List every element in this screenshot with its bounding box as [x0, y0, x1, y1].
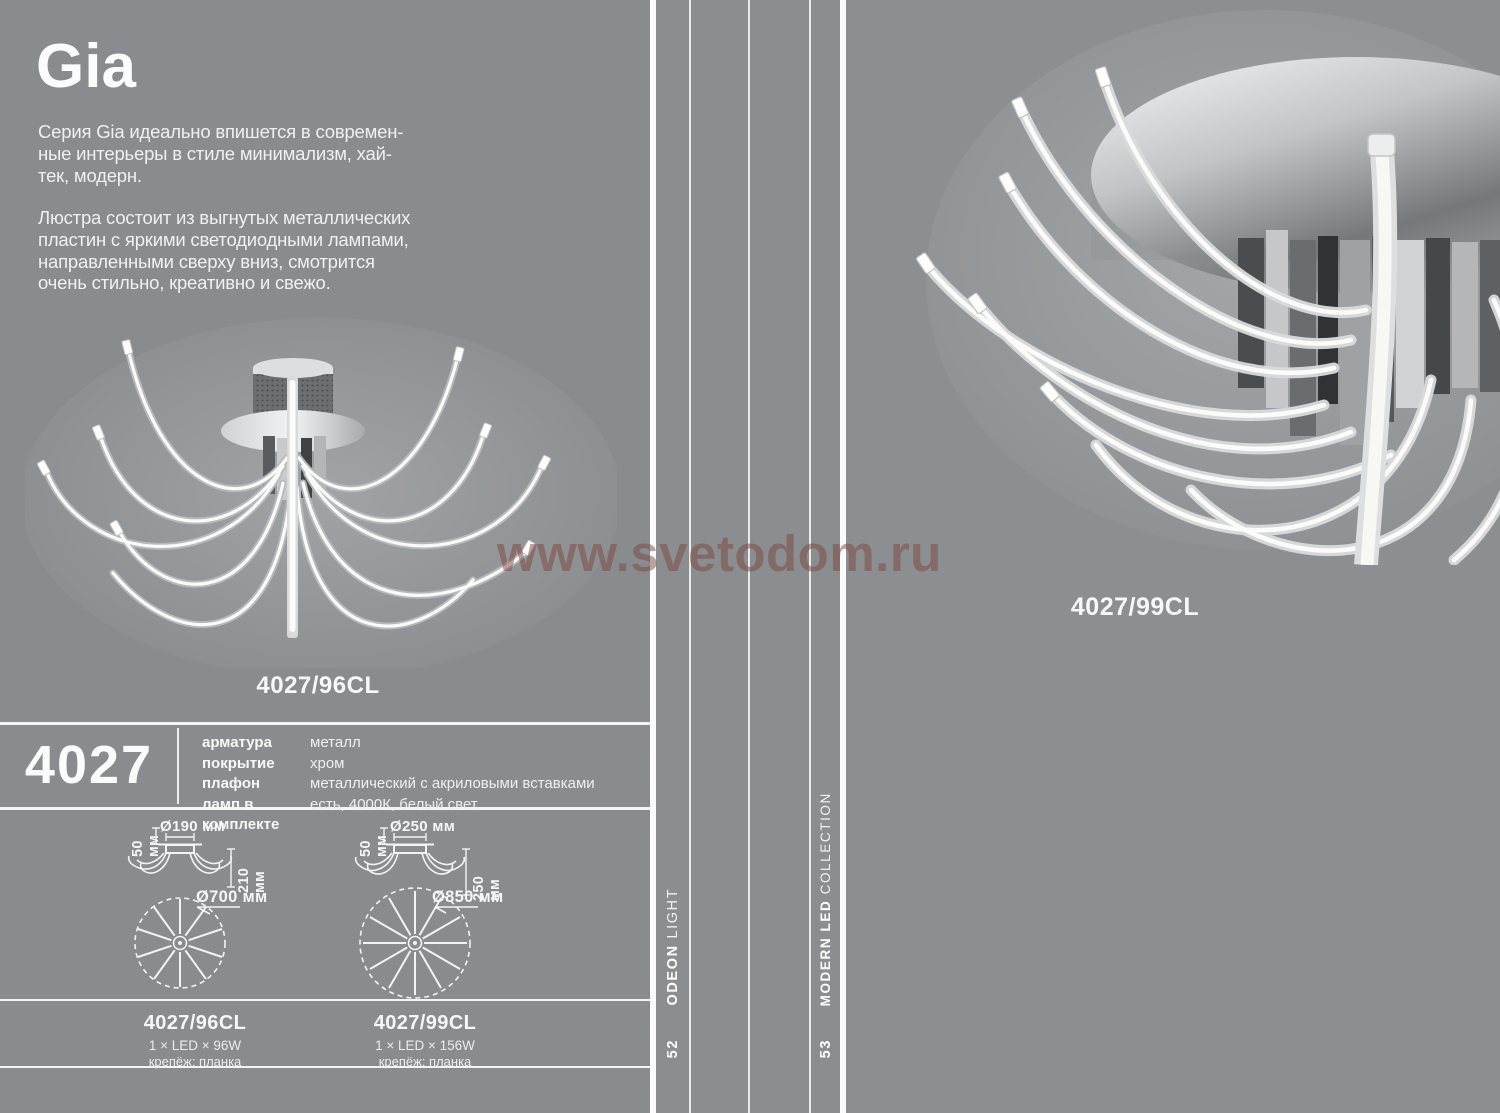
page-number-right: 53	[810, 1032, 841, 1066]
model-code: 4027/99CL	[330, 1012, 520, 1035]
gutter-line	[748, 0, 750, 1113]
model-lamps: 1 × LED × 156W	[330, 1038, 520, 1053]
brand-name: ODEON	[665, 939, 681, 1006]
product-code-label: 4027/96CL	[218, 672, 418, 700]
model-summary-96cl: 4027/96CL 1 × LED × 96W крепёж: планка	[100, 1012, 290, 1069]
model-mount: крепёж: планка	[330, 1054, 520, 1069]
canopy-diameter-label: Ø190 мм	[160, 818, 225, 835]
series-number: 4027	[0, 738, 178, 792]
intro-line: ные интерьеры в стиле минимализм, хай-	[38, 143, 403, 165]
dimension-diagram-96cl: 50 мм Ø190 мм 210 мм Ø700 мм	[100, 815, 350, 1005]
series-intro: Серия Gia идеально впишется в современ- …	[38, 121, 403, 186]
chandelier-photo-4027-99cl	[846, 0, 1500, 565]
collection-label: MODERN LED COLLECTION	[818, 792, 833, 1006]
catalog-spread: Gia Серия Gia идеально впишется в соврем…	[0, 0, 1500, 1113]
description-line: очень стильно, креативно и свежо.	[38, 272, 410, 294]
collection-suffix: COLLECTION	[818, 792, 833, 894]
divider-line	[0, 1066, 650, 1068]
description-line: направленными сверху вниз, смотрится	[38, 251, 410, 273]
page-number: 53	[818, 1039, 834, 1058]
spec-value: хром	[310, 754, 632, 775]
fixture-diameter-label: Ø850 мм	[432, 888, 503, 907]
page-number: 52	[665, 1039, 681, 1058]
brand-label: ODEON LIGHT	[665, 888, 681, 1006]
model-mount: крепёж: планка	[100, 1054, 290, 1069]
spec-value: металл	[310, 733, 632, 754]
collection-tab: MODERN LED COLLECTION	[810, 800, 841, 998]
spec-label: плафон	[202, 774, 310, 795]
model-lamps: 1 × LED × 96W	[100, 1038, 290, 1053]
divider-line	[0, 722, 650, 725]
fixture-height-label: 210 мм	[236, 847, 268, 893]
intro-line: Серия Gia идеально впишется в современ-	[38, 121, 403, 143]
spec-row: покрытие хром	[202, 754, 632, 775]
canopy-height-label: 50 мм	[130, 819, 162, 857]
fixture-diameter-label: Ø700 мм	[196, 888, 267, 907]
series-divider-line	[177, 728, 179, 804]
canopy-diameter-label: Ø250 мм	[390, 818, 455, 835]
brand-suffix: LIGHT	[665, 888, 681, 939]
central-led-blade	[287, 376, 298, 638]
page-edge-line	[650, 0, 656, 1113]
gutter-line	[689, 0, 691, 1113]
model-summary-99cl: 4027/99CL 1 × LED × 156W крепёж: планка	[330, 1012, 520, 1069]
spec-label: покрытие	[202, 754, 310, 775]
series-description: Люстра состоит из выгнутых металлических…	[38, 207, 410, 294]
spec-value: металлический с акриловыми вставками	[310, 774, 632, 795]
intro-line: тек, модерн.	[38, 165, 403, 187]
page-number-left: 52	[657, 1032, 689, 1066]
model-code: 4027/96CL	[100, 1012, 290, 1035]
spec-row: арматура металл	[202, 733, 632, 754]
product-code-label: 4027/99CL	[1035, 593, 1235, 622]
spec-row: плафон металлический с акриловыми вставк…	[202, 774, 632, 795]
spec-label: арматура	[202, 733, 310, 754]
series-title: Gia	[36, 36, 136, 98]
chandelier-photo-4027-96cl	[25, 318, 617, 668]
brand-tab: ODEON LIGHT	[657, 896, 689, 998]
canopy-height-label: 50 мм	[358, 819, 390, 857]
dimension-diagram-99cl: 50 мм Ø250 мм 250 мм Ø850 мм	[340, 815, 600, 1005]
collection-name: MODERN LED	[818, 894, 833, 1006]
description-line: пластин с яркими светодиодными лампами,	[38, 229, 410, 251]
description-line: Люстра состоит из выгнутых металлических	[38, 207, 410, 229]
